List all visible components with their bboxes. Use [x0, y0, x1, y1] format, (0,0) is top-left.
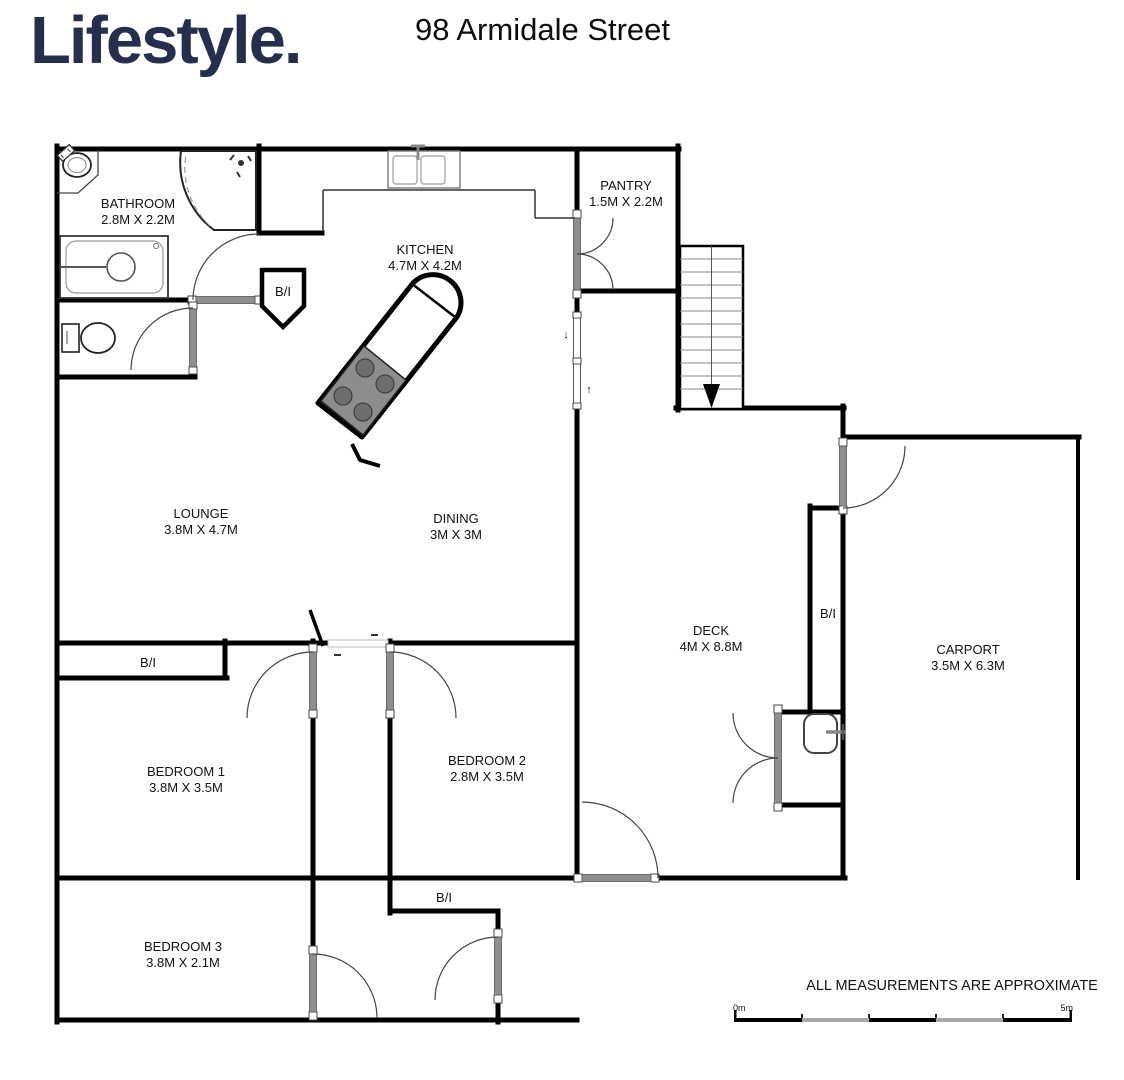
room-dims-lounge: 3.8M X 4.7M: [164, 522, 238, 537]
room-dims-bathroom: 2.8M X 2.2M: [101, 212, 175, 227]
scale-bar: 0m 5m: [733, 1003, 1073, 1022]
room-label-deck: DECK: [693, 623, 729, 638]
disclaimer-text: ALL MEASUREMENTS ARE APPROXIMATE: [806, 978, 1098, 994]
deck-toilet-icon: [804, 714, 846, 753]
room-dims-bedroom1: 3.8M X 3.5M: [149, 780, 223, 795]
room-dims-bedroom3: 3.8M X 2.1M: [146, 955, 220, 970]
builtin-label-deck: B/I: [820, 606, 836, 621]
walls: [57, 146, 1079, 1022]
room-dims-pantry: 1.5M X 2.2M: [589, 194, 663, 209]
room-dims-carport: 3.5M X 6.3M: [931, 658, 1005, 673]
room-dims-deck: 4M X 8.8M: [680, 639, 743, 654]
builtin-label-bathroom: B/I: [275, 284, 291, 299]
bedroom2-door: [386, 644, 456, 718]
rear-hall-door: [435, 929, 502, 1003]
room-dims-dining: 3M X 3M: [430, 527, 482, 542]
room-label-kitchen: KITCHEN: [396, 242, 453, 257]
window-arrow-up: ↑: [586, 384, 592, 396]
room-label-lounge: LOUNGE: [174, 506, 229, 521]
room-label-pantry: PANTRY: [600, 178, 652, 193]
kitchen-sink-icon: [388, 146, 460, 188]
room-label-bathroom: BATHROOM: [101, 196, 175, 211]
window-arrow-down: ↓: [563, 329, 569, 341]
floor-plan: ↓ ↑: [0, 0, 1124, 1080]
bathtub-icon: [60, 236, 168, 298]
bedroom3-door: [309, 946, 377, 1020]
wall-deck-top: [676, 406, 1079, 437]
builtin-label-bedroom2: B/I: [436, 890, 452, 905]
room-label-dining: DINING: [433, 511, 479, 526]
room-label-carport: CARPORT: [936, 642, 999, 657]
room-label-bedroom3: BEDROOM 3: [144, 939, 222, 954]
wall-bathroom-right: [259, 146, 322, 233]
room-dims-bedroom2: 2.8M X 3.5M: [450, 769, 524, 784]
wc-door: [131, 302, 197, 374]
bathroom-door: [188, 234, 263, 304]
hall-entry-door: [310, 610, 388, 655]
stairs: [680, 246, 743, 409]
fixtures: [57, 145, 846, 753]
pantry-door: [573, 210, 613, 298]
room-dims-kitchen: 4.7M X 4.2M: [388, 258, 462, 273]
deck-bottom-door: [574, 802, 659, 882]
basin-icon: [57, 145, 98, 193]
shower-icon: [180, 151, 256, 230]
bedroom1-door: [247, 644, 317, 718]
deck-side-door: [839, 438, 905, 514]
toilet-icon: [62, 323, 115, 353]
deck-wc-doors: [733, 705, 782, 811]
builtin-label-lounge: B/I: [140, 655, 156, 670]
room-label-bedroom2: BEDROOM 2: [448, 753, 526, 768]
kitchen-counter: [323, 190, 575, 231]
island-bench: [318, 275, 461, 466]
doors-windows: ↓ ↑: [131, 210, 905, 1020]
room-label-bedroom1: BEDROOM 1: [147, 764, 225, 779]
kitchen-window: ↓ ↑: [563, 312, 592, 409]
